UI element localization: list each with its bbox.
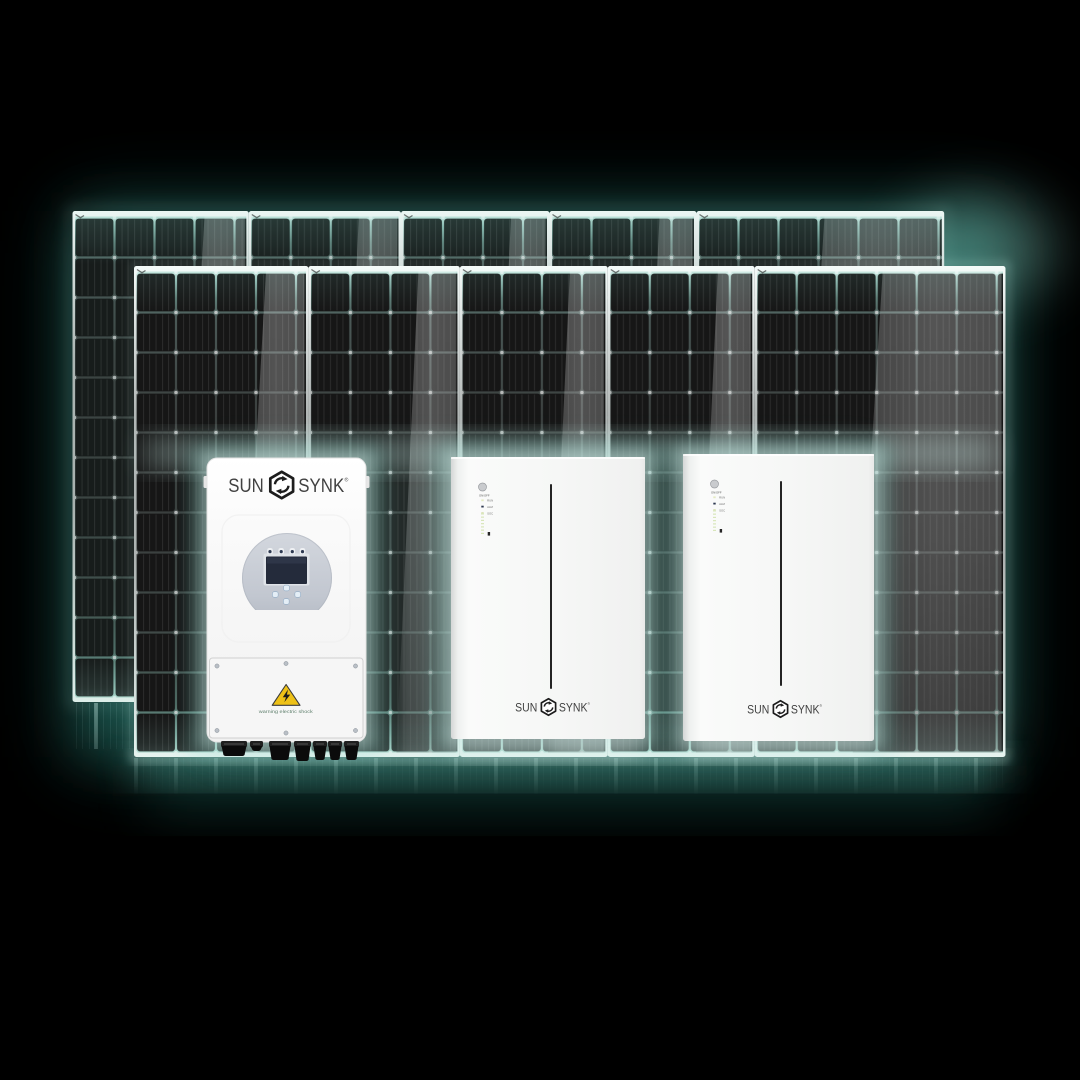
svg-text:warning electric shock: warning electric shock: [259, 709, 314, 714]
svg-text:RUN: RUN: [487, 499, 493, 503]
svg-text:ALM: ALM: [487, 505, 493, 509]
svg-text:RUN: RUN: [719, 496, 725, 500]
svg-text:SOC: SOC: [719, 508, 725, 512]
svg-text:ON/OFF: ON/OFF: [711, 491, 722, 495]
svg-text:ALM: ALM: [719, 502, 725, 506]
svg-text:SOC: SOC: [487, 511, 493, 515]
svg-text:ON/OFF: ON/OFF: [479, 494, 490, 498]
